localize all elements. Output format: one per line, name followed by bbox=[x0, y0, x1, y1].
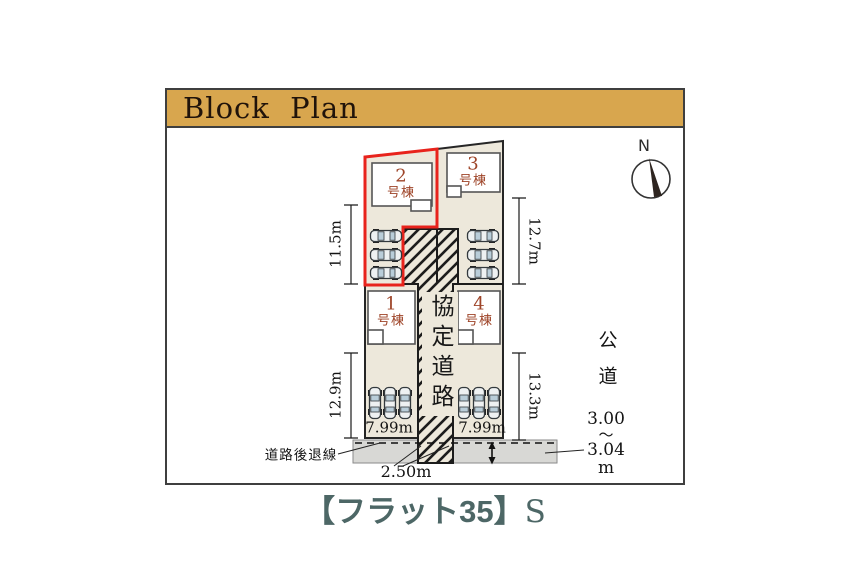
dimension-lot2-depth: 11.5m bbox=[329, 220, 344, 268]
agreement-road-label: 協定道路 bbox=[422, 292, 458, 416]
flat35-caption-main: 【フラット35】 bbox=[304, 494, 524, 529]
building-4-label: 4 号棟 bbox=[465, 296, 493, 329]
dimension-lot1-frontage: 7.99m bbox=[365, 421, 413, 436]
public-road-label-group: 公道 3.00 〜 3.04 m bbox=[580, 330, 632, 478]
building-4-suffix: 号棟 bbox=[465, 315, 493, 329]
building-2-label: 2 号棟 bbox=[387, 168, 415, 201]
flat35-caption-suffix: S bbox=[525, 494, 546, 530]
dimension-lot4-depth: 13.3m bbox=[527, 372, 542, 420]
setback-line-label: 道路後退線 bbox=[265, 449, 338, 463]
dimension-lot3-depth: 12.7m bbox=[527, 217, 542, 265]
building-1-label: 1 号棟 bbox=[377, 296, 405, 329]
building-2-number: 2 bbox=[387, 168, 415, 187]
dimension-lot4-frontage: 7.99m bbox=[458, 421, 506, 436]
building-3-suffix: 号棟 bbox=[459, 175, 487, 189]
building-3-label: 3 号棟 bbox=[459, 156, 487, 189]
flat35-caption: 【フラット35】S bbox=[165, 496, 685, 528]
public-road-unit: m bbox=[598, 460, 614, 478]
public-road-name: 公道 bbox=[597, 330, 616, 402]
building-2-suffix: 号棟 bbox=[387, 187, 415, 201]
dimension-lot1-depth: 12.9m bbox=[329, 371, 344, 419]
building-4-number: 4 bbox=[465, 296, 493, 315]
compass-north-label: N bbox=[638, 138, 650, 154]
page-title: Block Plan bbox=[167, 94, 359, 123]
building-1-suffix: 号棟 bbox=[377, 315, 405, 329]
block-plan-page: Block Plan N 2 号棟 3 号棟 1 号棟 4 号棟 協定道路 11… bbox=[0, 0, 850, 570]
header-bar: Block Plan bbox=[165, 88, 685, 128]
building-1-number: 1 bbox=[377, 296, 405, 315]
building-3-number: 3 bbox=[459, 156, 487, 175]
dimension-setback-road-width: 2.50m bbox=[381, 464, 432, 480]
